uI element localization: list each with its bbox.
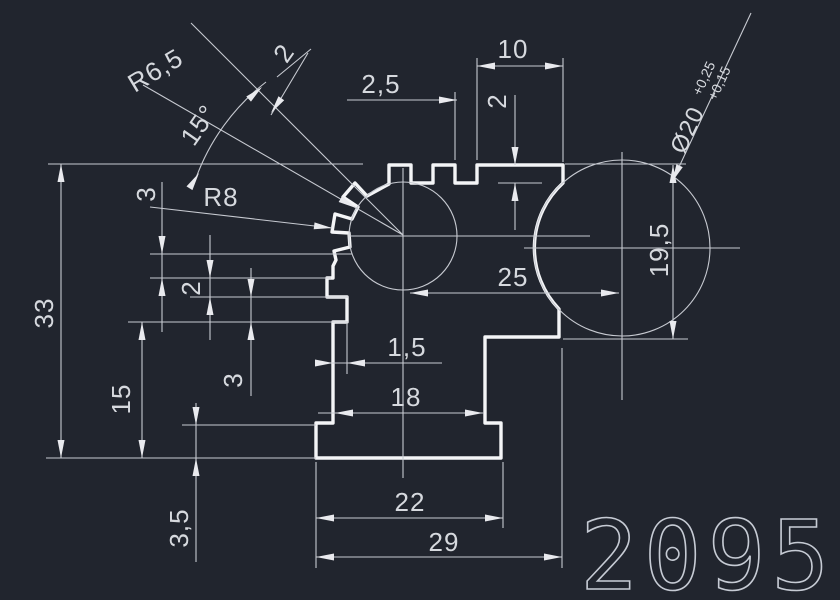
arrowhead [207, 260, 214, 278]
dim-total-width: 29 [429, 527, 460, 557]
dim-slot-width: 2,5 [361, 69, 400, 99]
arrowhead [186, 171, 201, 190]
arrowhead [159, 278, 166, 296]
arrowhead [410, 290, 428, 297]
arrowhead [477, 63, 495, 70]
arrowhead [316, 554, 334, 561]
dim-base-thickness: 3,5 [164, 508, 194, 547]
dim-mid-width: 18 [391, 382, 422, 412]
dim-top-width: 10 [498, 34, 529, 64]
extension-lines [46, 58, 688, 568]
dim-bore: Ø20 +0,25 +0,15 [663, 57, 733, 159]
dim-bore-dia: Ø20 [665, 103, 710, 158]
arrowhead [512, 147, 519, 165]
arrowhead [193, 458, 200, 476]
arrowhead [314, 222, 333, 231]
dim-rib-height: 2 [176, 280, 206, 295]
dimension-arrows [58, 63, 683, 561]
arrowhead [193, 407, 200, 425]
arrowhead [207, 297, 214, 315]
dim-right-height: 19,5 [644, 223, 674, 278]
dim-tooth-width: 2 [267, 38, 300, 68]
arrowhead [544, 554, 562, 561]
dim-total-height: 33 [29, 298, 59, 329]
arrowhead [159, 236, 166, 254]
arrowhead [58, 164, 65, 182]
dim-root-radius: R6,5 [122, 42, 188, 98]
dim-step-a: 3 [131, 186, 161, 201]
dim-lower-height: 15 [106, 384, 136, 415]
center-lines [350, 152, 740, 478]
arrowhead [316, 515, 334, 522]
arrowhead [139, 322, 146, 340]
dim-center-dist: 25 [498, 262, 529, 292]
arrowhead [347, 360, 365, 367]
arrowhead [139, 440, 146, 458]
arrowhead [58, 440, 65, 458]
arrowhead [335, 410, 353, 417]
arrowhead [439, 97, 457, 104]
arrowhead [601, 290, 619, 297]
arrowhead [248, 322, 255, 340]
arrowhead [545, 63, 563, 70]
arrowhead [485, 515, 503, 522]
technical-drawing: 10 2,5 2 Ø20 +0,25 +0,15 19,5 25 R8 R6,5… [0, 0, 840, 600]
dim-base-width: 22 [395, 487, 426, 517]
arrowhead [248, 279, 255, 297]
dim-tip-radius: R8 [203, 182, 238, 212]
arrowhead [512, 183, 519, 201]
cad-canvas: 10 2,5 2 Ø20 +0,25 +0,15 19,5 25 R8 R6,5… [0, 0, 840, 600]
profile-outline [316, 165, 563, 458]
arrowhead [465, 410, 483, 417]
arrowhead [315, 360, 333, 367]
arrowhead [670, 321, 677, 339]
dim-tooth-depth: 2 [482, 93, 512, 108]
arrowhead [268, 96, 284, 115]
dim-groove-height: 3 [218, 372, 248, 387]
drawing-number: 2095 [580, 500, 835, 600]
dim-groove-depth: 1,5 [387, 332, 426, 362]
dimension-labels: 10 2,5 2 Ø20 +0,25 +0,15 19,5 25 R8 R6,5… [29, 34, 734, 557]
dimension-lines [61, 13, 751, 562]
